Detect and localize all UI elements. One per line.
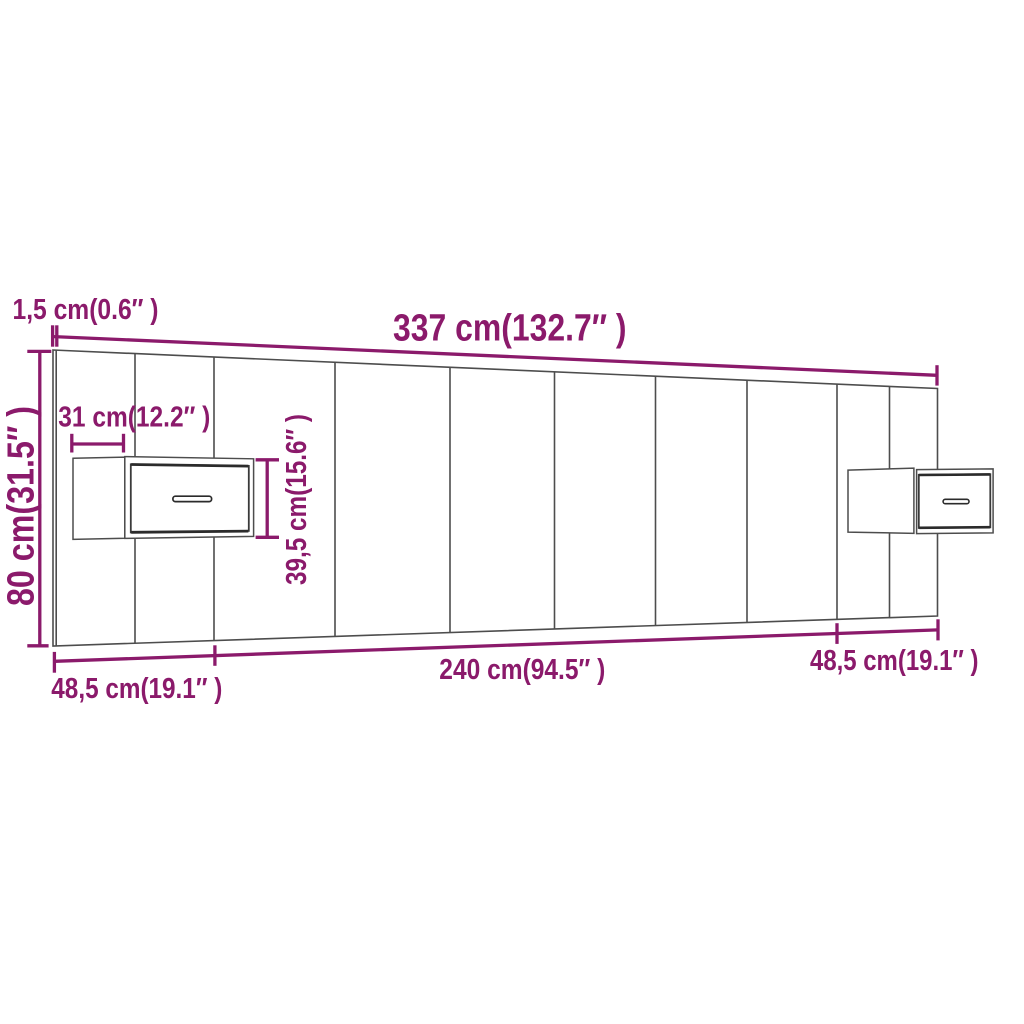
svg-text:48,5 cm(19.1″ ): 48,5 cm(19.1″ ) xyxy=(810,645,979,677)
svg-text:240 cm(94.5″ ): 240 cm(94.5″ ) xyxy=(439,654,605,686)
svg-text:1,5 cm(0.6″ ): 1,5 cm(0.6″ ) xyxy=(13,294,159,326)
svg-text:31 cm(12.2″ ): 31 cm(12.2″ ) xyxy=(58,402,210,434)
svg-text:80 cm(31.5″ ): 80 cm(31.5″ ) xyxy=(1,406,43,606)
svg-text:48,5 cm(19.1″ ): 48,5 cm(19.1″ ) xyxy=(51,673,222,705)
svg-text:337 cm(132.7″ ): 337 cm(132.7″ ) xyxy=(393,308,627,350)
svg-text:39,5 cm(15.6″ ): 39,5 cm(15.6″ ) xyxy=(281,414,313,585)
